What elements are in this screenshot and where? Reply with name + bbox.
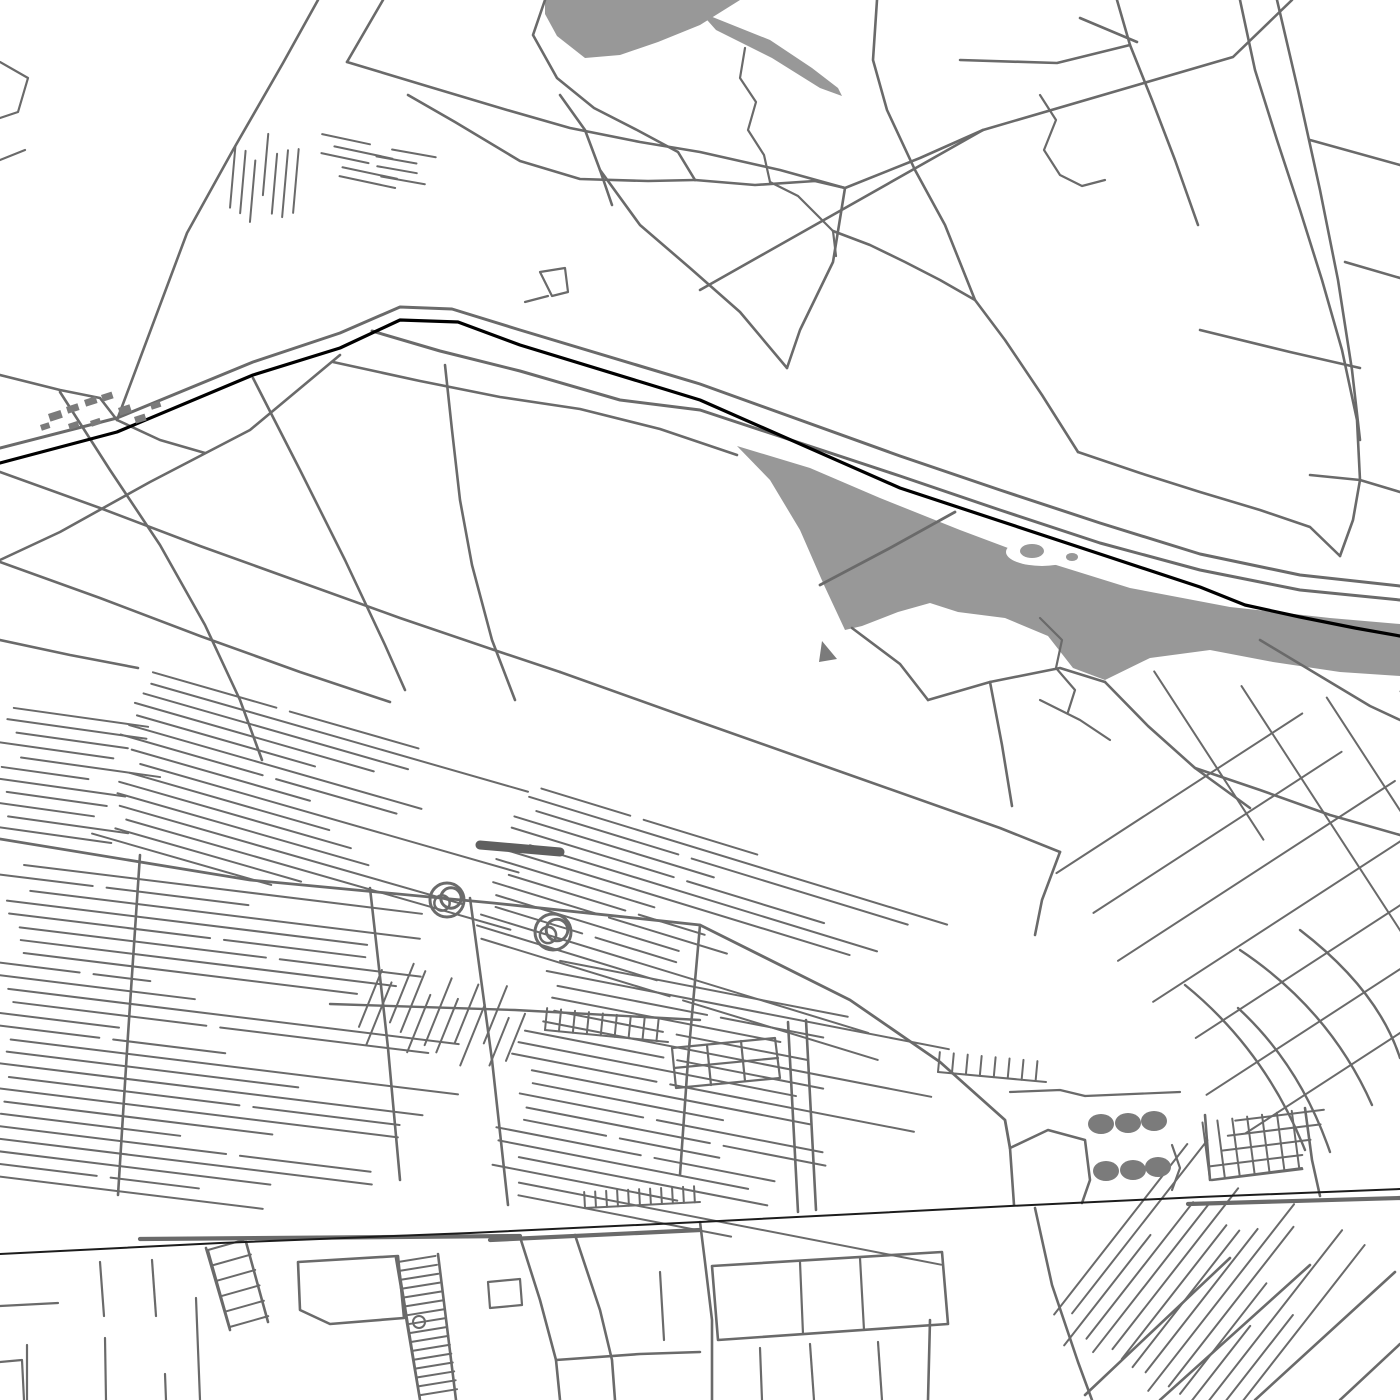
road bbox=[0, 307, 1400, 586]
road bbox=[1200, 330, 1360, 368]
road bbox=[810, 1344, 814, 1400]
road bbox=[1345, 262, 1400, 278]
field-line bbox=[654, 1158, 774, 1181]
road bbox=[520, 1237, 560, 1400]
road bbox=[760, 1348, 762, 1400]
ladder-dense-tooth bbox=[411, 1336, 449, 1342]
south-railway bbox=[0, 1189, 1400, 1254]
road bbox=[0, 355, 340, 560]
ladder-small-tooth bbox=[208, 1239, 246, 1250]
road bbox=[873, 0, 1078, 452]
brick-dividers-tooth bbox=[1217, 1121, 1225, 1179]
field-line bbox=[140, 764, 518, 872]
plot-comb-1 bbox=[545, 1030, 668, 1042]
field-line bbox=[2, 767, 89, 779]
field-line bbox=[126, 820, 510, 930]
field-line bbox=[1122, 1225, 1227, 1359]
plot-comb-3-tooth bbox=[628, 1190, 629, 1206]
field-line bbox=[377, 156, 417, 163]
road bbox=[700, 1222, 712, 1400]
ladder-dense-tooth bbox=[412, 1345, 450, 1351]
road bbox=[480, 845, 560, 852]
plot-comb-1-tooth bbox=[643, 1018, 645, 1040]
plot-comb-2-tooth bbox=[966, 1055, 968, 1075]
field-line bbox=[512, 1054, 656, 1082]
road bbox=[575, 1235, 615, 1400]
road bbox=[1340, 480, 1360, 556]
road bbox=[1300, 930, 1400, 1058]
road bbox=[253, 378, 405, 690]
road bbox=[525, 296, 548, 302]
road bbox=[990, 682, 1012, 806]
plot-comb-2-tooth bbox=[1036, 1061, 1038, 1081]
road bbox=[1105, 682, 1250, 808]
ladder-small-tooth bbox=[217, 1270, 255, 1281]
road bbox=[0, 472, 560, 672]
water-layer bbox=[545, 0, 1400, 680]
field-line bbox=[1064, 1235, 1150, 1345]
ladder-dense-tooth bbox=[398, 1256, 436, 1262]
road bbox=[560, 95, 612, 205]
field-line bbox=[1327, 698, 1400, 922]
map-viewport[interactable] bbox=[0, 0, 1400, 1400]
field-line bbox=[0, 802, 94, 816]
field-line bbox=[359, 970, 382, 1027]
field-line bbox=[30, 891, 420, 939]
field-line bbox=[425, 978, 452, 1045]
pond bbox=[545, 0, 740, 58]
road bbox=[878, 1342, 882, 1400]
road bbox=[1240, 950, 1372, 1105]
field-line bbox=[519, 1157, 767, 1205]
road bbox=[960, 45, 1130, 63]
road bbox=[928, 668, 1105, 700]
road bbox=[152, 1260, 156, 1316]
field-line bbox=[240, 1156, 371, 1172]
plot-comb-2-tooth bbox=[980, 1056, 982, 1076]
road bbox=[845, 130, 983, 188]
road bbox=[246, 1242, 268, 1322]
plot-comb-3-tooth bbox=[661, 1188, 662, 1204]
road bbox=[1188, 1198, 1400, 1204]
ladder-small-tooth bbox=[225, 1301, 263, 1312]
road bbox=[1085, 1258, 1230, 1395]
plot-comb-3-tooth bbox=[617, 1190, 618, 1206]
street-map-canvas bbox=[0, 0, 1400, 1400]
road bbox=[347, 0, 383, 62]
field-line bbox=[282, 150, 288, 217]
brick-dividers-tooth bbox=[1292, 1111, 1300, 1169]
field-line bbox=[0, 875, 92, 886]
field-line bbox=[687, 881, 824, 923]
field-line bbox=[7, 719, 146, 739]
field-line bbox=[0, 975, 195, 999]
road bbox=[0, 1303, 58, 1306]
road bbox=[928, 1320, 930, 1400]
building bbox=[101, 392, 114, 402]
field-line bbox=[455, 985, 478, 1043]
road bbox=[445, 365, 515, 700]
road bbox=[1078, 452, 1340, 556]
ladder-dense-tooth bbox=[415, 1363, 453, 1369]
ladder-dense-tooth bbox=[418, 1380, 456, 1386]
road bbox=[438, 1254, 456, 1400]
road bbox=[600, 170, 787, 368]
landmark-dot bbox=[1088, 1114, 1114, 1134]
ladder-dense-tooth bbox=[402, 1283, 440, 1289]
field-line bbox=[144, 693, 408, 769]
field-line bbox=[496, 859, 654, 907]
road bbox=[800, 1262, 803, 1334]
road bbox=[0, 62, 28, 118]
landmark-dot bbox=[1145, 1157, 1171, 1177]
ladder-small-tooth bbox=[212, 1255, 250, 1266]
plot-comb-2-tooth bbox=[994, 1057, 996, 1077]
road bbox=[298, 1256, 404, 1324]
field-line bbox=[0, 1136, 372, 1185]
ladder-dense-tooth bbox=[405, 1300, 443, 1306]
field-line bbox=[24, 953, 357, 994]
plot-comb-3-tooth bbox=[672, 1187, 673, 1203]
landmark-dot bbox=[1093, 1161, 1119, 1181]
road bbox=[488, 1279, 522, 1308]
landmark-dot bbox=[1115, 1113, 1141, 1133]
field-line bbox=[321, 153, 368, 163]
road bbox=[1040, 95, 1105, 186]
field-line bbox=[392, 150, 436, 158]
plot-comb-2-tooth bbox=[952, 1053, 954, 1073]
field-line bbox=[481, 939, 669, 997]
plot-comb-1-tooth bbox=[629, 1016, 631, 1038]
road bbox=[806, 1020, 816, 1210]
plot-comb-3-tooth bbox=[694, 1186, 695, 1202]
road bbox=[540, 268, 568, 296]
field-line bbox=[0, 1087, 398, 1137]
road bbox=[833, 231, 975, 300]
field-line bbox=[519, 1183, 941, 1265]
plot-comb-2-tooth bbox=[1008, 1059, 1010, 1079]
main-railway bbox=[0, 320, 1400, 636]
field-line bbox=[498, 1140, 748, 1189]
island-blob bbox=[1066, 553, 1078, 561]
field-line bbox=[524, 1120, 606, 1136]
road bbox=[560, 672, 1060, 852]
field-line bbox=[529, 797, 947, 925]
field-line bbox=[724, 1146, 826, 1166]
field-line bbox=[263, 134, 268, 195]
road bbox=[1160, 1265, 1310, 1400]
field-line bbox=[1086, 1202, 1193, 1338]
field-line bbox=[13, 1002, 206, 1026]
building bbox=[84, 396, 98, 406]
brick-dividers-tooth bbox=[1277, 1113, 1285, 1171]
road bbox=[1010, 1090, 1085, 1096]
building bbox=[90, 418, 101, 427]
field-line bbox=[547, 971, 949, 1049]
road bbox=[852, 628, 928, 700]
road bbox=[165, 1374, 166, 1400]
plot-comb-3-tooth bbox=[584, 1192, 585, 1208]
field-line bbox=[1153, 818, 1400, 1002]
road bbox=[196, 1298, 200, 1400]
field-line bbox=[1154, 671, 1263, 839]
field-line bbox=[250, 161, 255, 222]
field-line bbox=[1093, 1204, 1209, 1352]
road bbox=[347, 62, 845, 188]
field-line bbox=[1180, 1283, 1266, 1394]
field-line bbox=[541, 789, 630, 816]
road bbox=[1117, 0, 1198, 225]
ladder-dense-tooth bbox=[401, 1274, 439, 1280]
field-line bbox=[1241, 686, 1400, 944]
field-line bbox=[9, 913, 210, 938]
ladder-dense-tooth bbox=[409, 1327, 447, 1333]
field-line bbox=[151, 684, 528, 792]
field-line bbox=[21, 940, 396, 986]
field-line bbox=[220, 1027, 428, 1053]
island-blob bbox=[1020, 544, 1044, 558]
field-line bbox=[20, 927, 266, 957]
brick-dividers-tooth bbox=[1247, 1117, 1255, 1175]
field-line bbox=[121, 735, 263, 776]
road bbox=[105, 1338, 106, 1400]
field-line bbox=[7, 792, 107, 806]
building bbox=[134, 414, 147, 424]
road bbox=[0, 562, 390, 702]
field-line bbox=[1169, 1227, 1294, 1387]
road bbox=[100, 1262, 104, 1316]
plot-comb-3-tooth bbox=[639, 1189, 640, 1205]
field-line bbox=[381, 177, 425, 185]
field-line bbox=[113, 1039, 225, 1053]
road bbox=[700, 0, 1292, 290]
field-line bbox=[1146, 1229, 1258, 1372]
field-line bbox=[322, 134, 370, 144]
ladder-dense-tooth bbox=[417, 1371, 455, 1377]
road bbox=[556, 1352, 700, 1360]
building-marks-layer bbox=[40, 392, 837, 1328]
ladder-dense-tooth bbox=[404, 1291, 442, 1297]
road bbox=[1010, 1130, 1090, 1203]
road bbox=[860, 1258, 864, 1330]
road bbox=[0, 640, 138, 668]
field-line bbox=[1, 1114, 180, 1136]
field-line bbox=[130, 773, 330, 830]
road bbox=[206, 1248, 230, 1330]
small-triangle bbox=[819, 641, 837, 662]
road bbox=[117, 0, 318, 420]
field-line bbox=[118, 793, 369, 865]
plot-comb-2-tooth bbox=[1022, 1060, 1024, 1080]
road bbox=[0, 1360, 24, 1400]
field-line bbox=[460, 1005, 484, 1066]
plot-comb-1-tooth bbox=[615, 1015, 617, 1037]
ladder-dense-tooth bbox=[414, 1354, 452, 1360]
field-line bbox=[596, 938, 677, 963]
field-line bbox=[520, 1093, 643, 1117]
road bbox=[1310, 140, 1400, 165]
road bbox=[1240, 0, 1360, 480]
field-line bbox=[240, 151, 245, 213]
brick-dividers-tooth bbox=[1262, 1115, 1270, 1173]
ladder-dense-tooth bbox=[407, 1309, 445, 1315]
field-line bbox=[0, 1061, 423, 1115]
field-line bbox=[677, 1060, 823, 1088]
ladder-small-tooth bbox=[230, 1316, 268, 1327]
field-line bbox=[293, 149, 299, 213]
road bbox=[1085, 1092, 1180, 1096]
road bbox=[660, 1272, 664, 1340]
field-hatch-layer bbox=[0, 134, 1400, 1400]
field-line bbox=[496, 1127, 640, 1155]
field-line bbox=[17, 733, 128, 749]
field-line bbox=[377, 166, 416, 173]
road bbox=[1035, 852, 1060, 935]
landmark-dot bbox=[1141, 1111, 1167, 1131]
road bbox=[60, 392, 262, 760]
field-line bbox=[0, 961, 80, 972]
plot-comb-3-tooth bbox=[683, 1187, 684, 1203]
field-line bbox=[496, 895, 679, 951]
plot-comb-3-tooth bbox=[650, 1189, 651, 1205]
field-line bbox=[111, 1178, 199, 1189]
road bbox=[0, 150, 25, 160]
landmark-dot bbox=[1120, 1160, 1146, 1180]
field-line bbox=[93, 974, 150, 981]
field-line bbox=[4, 1102, 272, 1135]
field-line bbox=[120, 806, 462, 904]
road bbox=[1340, 1344, 1400, 1400]
field-line bbox=[0, 1023, 99, 1038]
road bbox=[788, 1022, 798, 1212]
field-line bbox=[21, 758, 160, 778]
road bbox=[470, 898, 508, 1205]
road bbox=[1195, 768, 1400, 835]
river-lake bbox=[737, 446, 1400, 680]
brick-dividers-tooth bbox=[1232, 1119, 1240, 1177]
field-line bbox=[272, 154, 277, 214]
plot-comb-1-tooth bbox=[656, 1019, 658, 1041]
road bbox=[680, 925, 700, 1175]
field-line bbox=[0, 1012, 119, 1027]
plot-comb-3-tooth bbox=[606, 1191, 607, 1207]
field-line bbox=[7, 901, 367, 945]
field-line bbox=[401, 971, 426, 1032]
plot-comb-3-tooth bbox=[595, 1191, 596, 1207]
building bbox=[48, 410, 63, 422]
road bbox=[1310, 475, 1400, 492]
field-line bbox=[0, 1162, 97, 1176]
building bbox=[40, 422, 50, 430]
road bbox=[1040, 700, 1110, 740]
field-line bbox=[1217, 1245, 1365, 1400]
ladder-small-tooth bbox=[221, 1285, 259, 1296]
field-line bbox=[407, 995, 430, 1052]
ladder-dense-tooth bbox=[399, 1265, 437, 1271]
road bbox=[712, 1252, 948, 1340]
pond-tail bbox=[700, 12, 842, 96]
road bbox=[1010, 1148, 1014, 1205]
ladder-dense-tooth bbox=[420, 1389, 458, 1395]
field-line bbox=[14, 708, 148, 727]
